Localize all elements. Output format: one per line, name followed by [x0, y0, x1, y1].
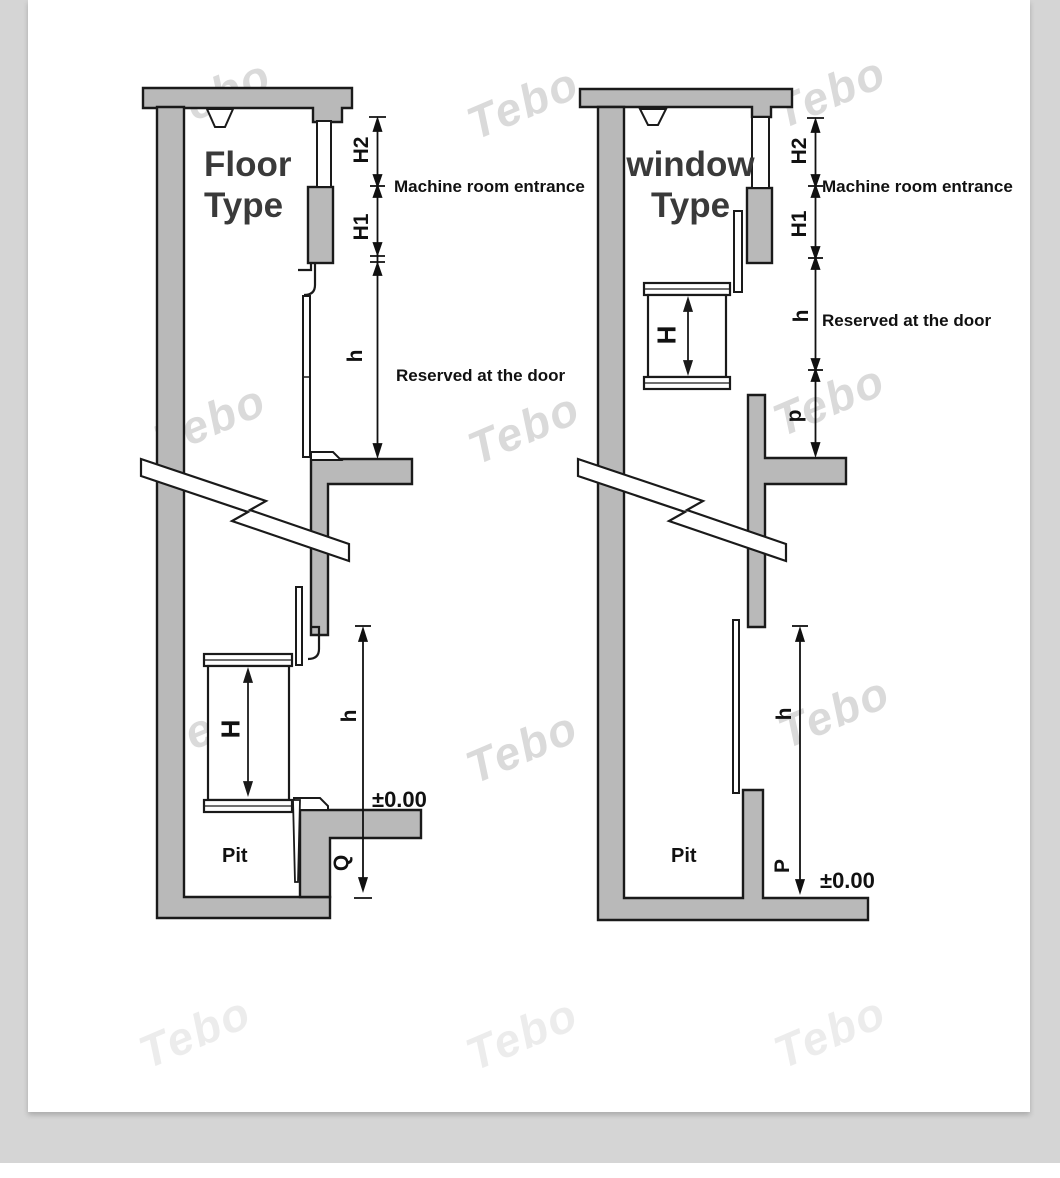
- machine-room-annotation: Machine room entrance: [394, 177, 585, 197]
- bottom-white-strip: [0, 1163, 1060, 1178]
- dim-label-door-h: h: [790, 310, 814, 323]
- dim-label-h1: H1: [350, 214, 374, 241]
- travel-dimension-line: [792, 626, 808, 892]
- dim-label-h2: H2: [350, 137, 374, 164]
- floor-type-title: Floor Type: [204, 144, 291, 226]
- title-line2: Type: [608, 185, 773, 226]
- guide-rail: [317, 121, 331, 187]
- dim-label-cabin-H: H: [216, 720, 247, 739]
- dim-label-slab-p: p: [783, 410, 807, 423]
- machine-panel: [308, 187, 333, 263]
- title-line1: Floor: [204, 144, 291, 185]
- title-line1: window: [608, 144, 773, 185]
- dim-label-pit-depth: Q: [330, 855, 354, 871]
- reserved-door-annotation: Reserved at the door: [822, 311, 991, 331]
- dim-label-h1: H1: [788, 211, 812, 238]
- dim-label-pit-depth: P: [771, 859, 795, 873]
- window-type-title: window Type: [608, 144, 773, 226]
- machine-room-annotation: Machine room entrance: [822, 177, 1013, 197]
- hoist-hook-notch: [640, 109, 666, 125]
- dim-label-travel-h: h: [773, 708, 797, 721]
- pit-label: Pit: [222, 845, 248, 868]
- travel-dimension-line: [354, 626, 372, 898]
- zero-level-label: ±0.00: [820, 868, 875, 894]
- dimension-chain: [369, 117, 386, 456]
- toe-guard-blade: [293, 800, 300, 882]
- lower-door-panel: [296, 587, 302, 665]
- reserved-door-annotation: Reserved at the door: [396, 366, 565, 386]
- pit-label: Pit: [671, 845, 697, 868]
- hoist-hook-notch: [207, 109, 233, 127]
- dim-label-door-h: h: [344, 350, 368, 363]
- landing-sill: [311, 452, 341, 460]
- landing-floor-slab: [748, 395, 846, 627]
- title-line2: Type: [204, 185, 291, 226]
- dim-label-cabin-H: H: [652, 326, 683, 345]
- page: TeboTeboTeboTeboTeboTeboTeboTeboTeboTebo…: [0, 0, 1060, 1178]
- zero-level-label: ±0.00: [372, 787, 427, 813]
- dimension-chain: [807, 118, 824, 455]
- door-header-hook: [298, 264, 315, 295]
- dim-label-h2: H2: [788, 138, 812, 165]
- dim-label-travel-h: h: [338, 710, 362, 723]
- lower-door-panel: [733, 620, 739, 793]
